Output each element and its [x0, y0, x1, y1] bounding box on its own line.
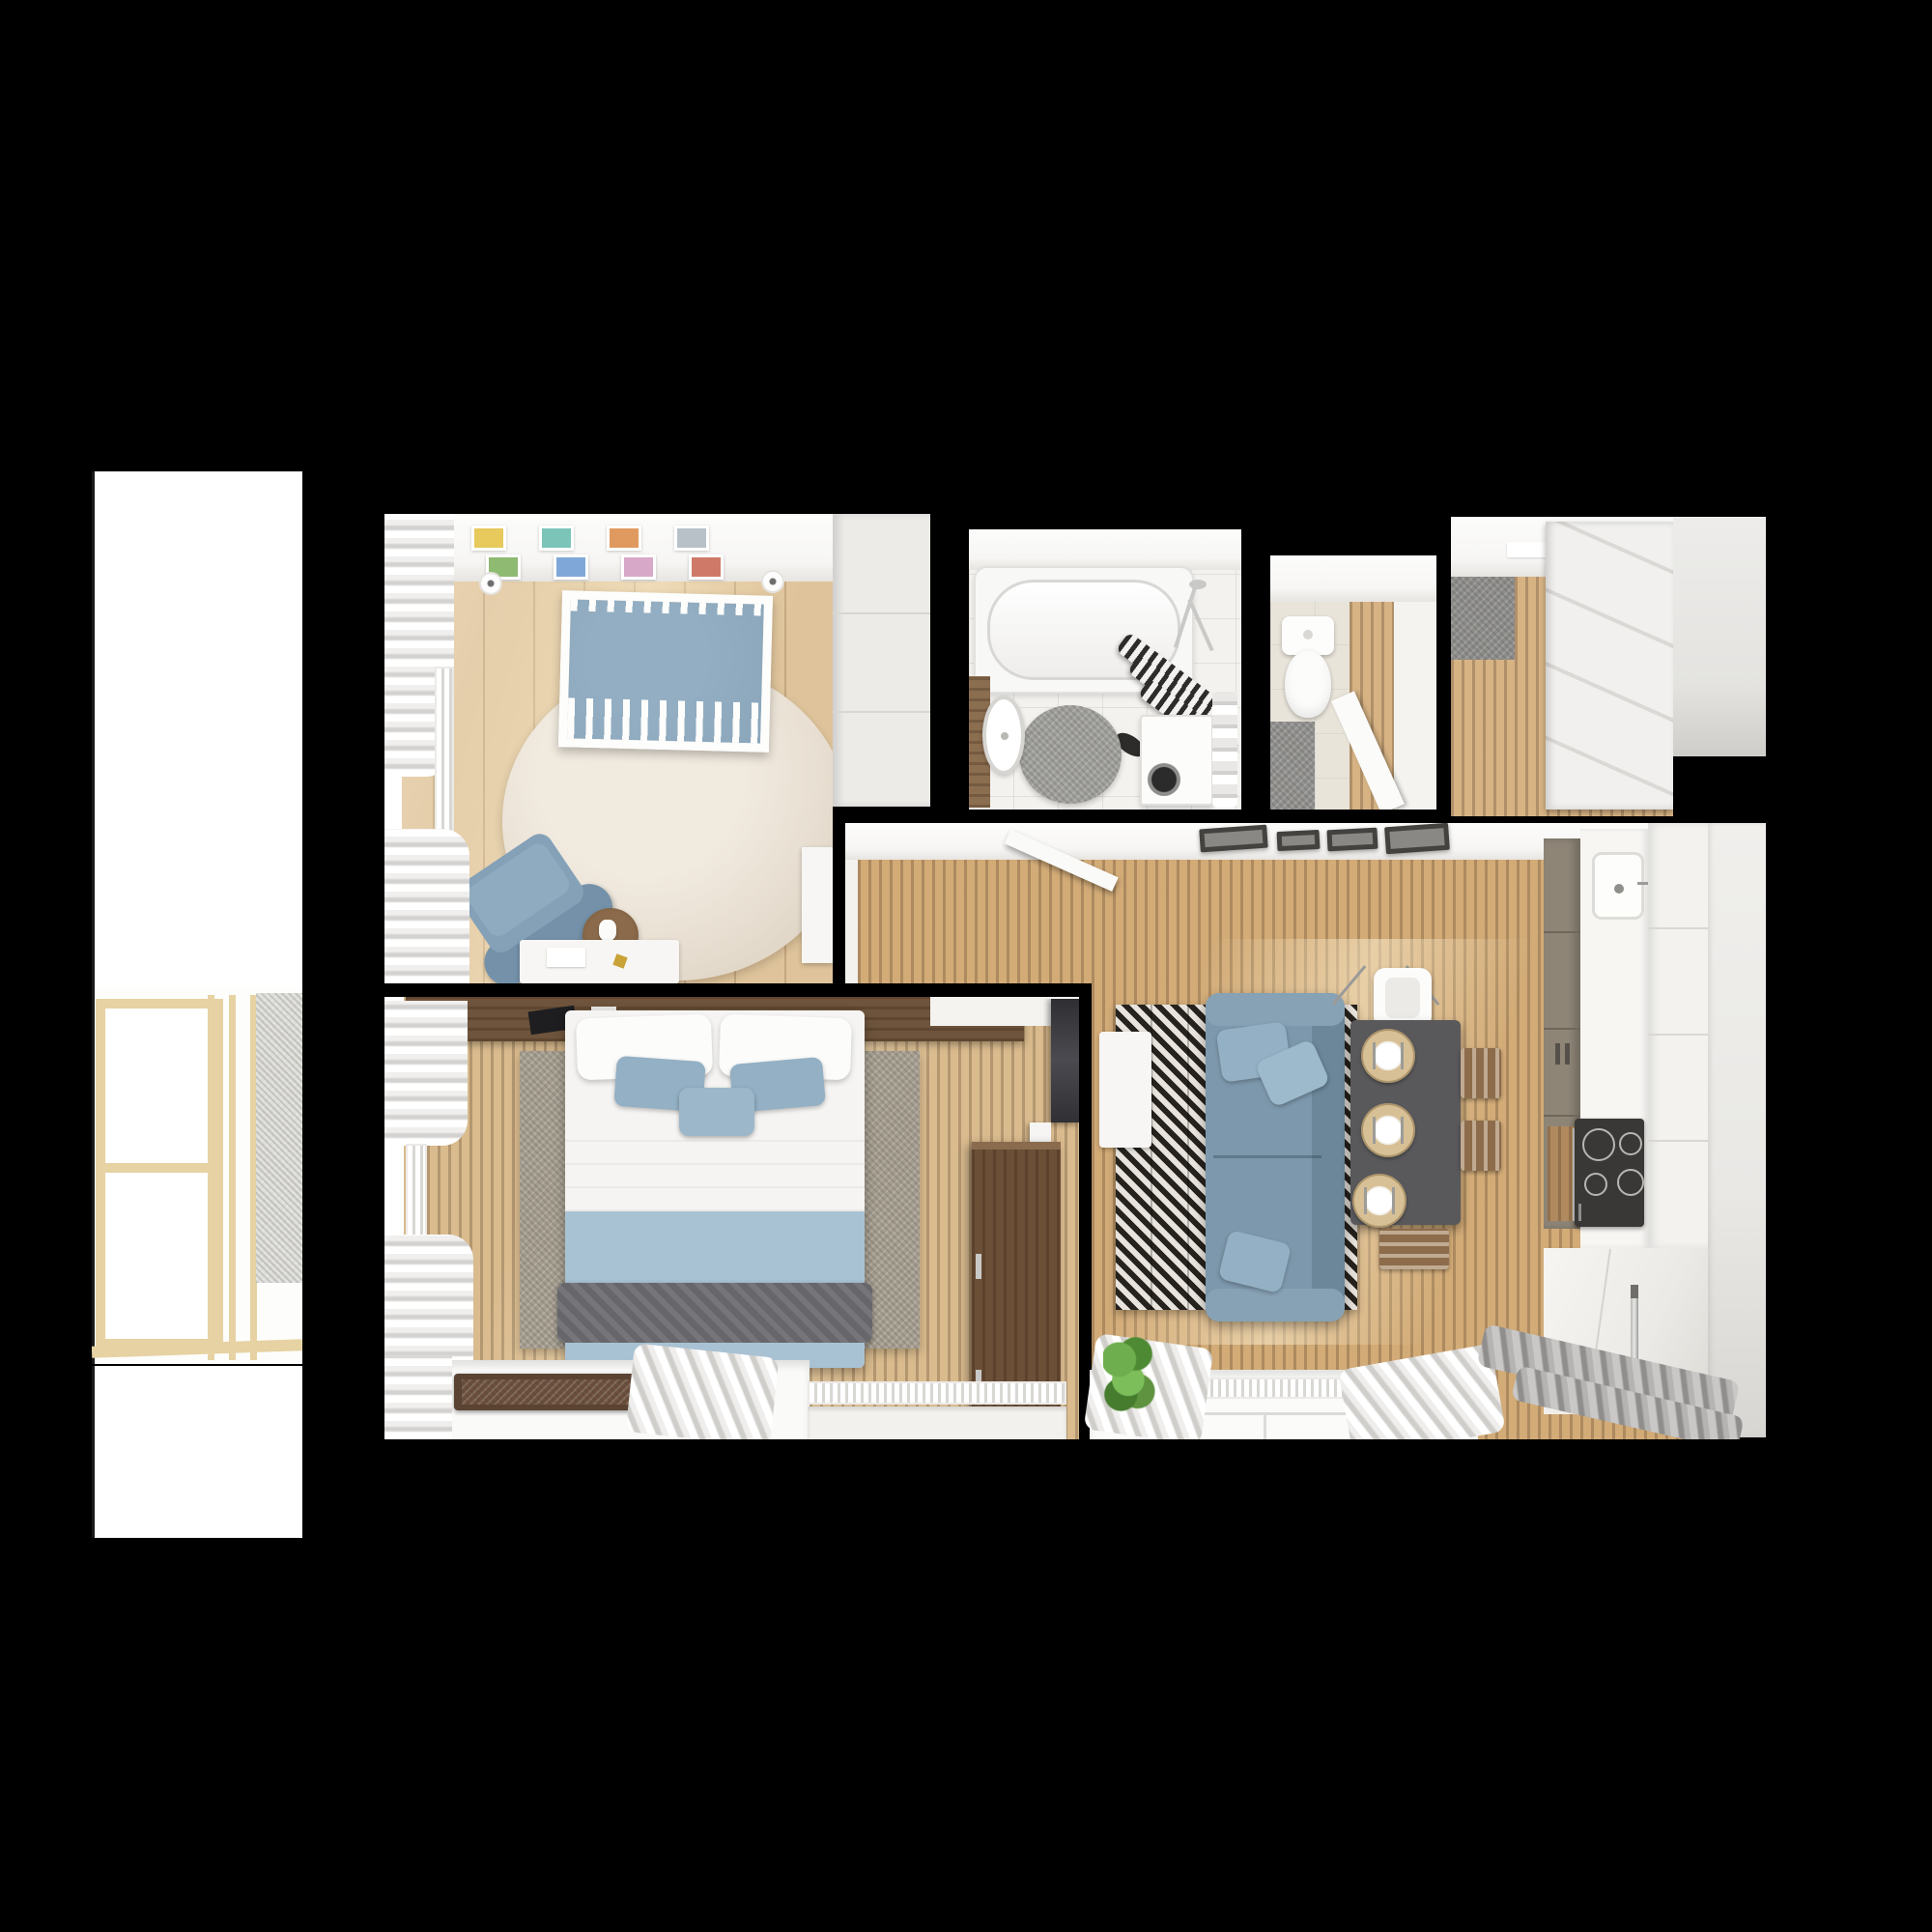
- balcony-floor-top: [92, 471, 302, 987]
- crib: [558, 590, 773, 753]
- bedroom-radiator-bottom: [808, 1381, 1066, 1405]
- sofa-pillow: [1218, 1230, 1293, 1293]
- bedroom-doorway-threshold: [1024, 997, 1079, 999]
- sink-drain: [1001, 732, 1009, 740]
- bedroom-curtain-top: [384, 1001, 468, 1146]
- bedroom-window-bottom: [808, 1406, 1066, 1439]
- cooktop-controls: [1578, 1204, 1581, 1221]
- drawer-seam: [1648, 1034, 1708, 1036]
- bedroom-wall-tv: [1051, 997, 1079, 1122]
- wall-art-frame: [621, 554, 656, 580]
- living-radiator: [1196, 1378, 1360, 1399]
- hall-ceiling-detail: [1507, 542, 1546, 557]
- ceiling-spotlight: [481, 574, 500, 593]
- bedroom-dresser: [972, 1142, 1061, 1410]
- fridge-handle-cap: [1631, 1285, 1638, 1298]
- bedroom-curtain-mid: [626, 1343, 780, 1439]
- burner: [1617, 1169, 1644, 1196]
- wardrobe-seam: [833, 711, 930, 713]
- living-tv-stand: [1099, 1032, 1151, 1148]
- bedroom: [384, 997, 1079, 1439]
- bathroom-rug: [1019, 705, 1122, 804]
- hallway: [1451, 517, 1673, 816]
- drawer-seam: [1648, 927, 1708, 929]
- nursery-curtain-bottom: [384, 829, 469, 983]
- dining-chair: [1379, 1229, 1449, 1269]
- dresser-top-edge: [972, 1142, 1061, 1150]
- nursery-shelf-unit: [802, 847, 833, 963]
- towel-rail: [1212, 692, 1237, 808]
- cabinet-handle: [1565, 1043, 1570, 1065]
- bathroom-wall-band: [969, 529, 1241, 570]
- shower-head: [1189, 580, 1207, 589]
- oven-front: [1548, 1126, 1575, 1221]
- ceiling-spotlight: [763, 572, 782, 591]
- dining-chair: [1461, 1121, 1501, 1171]
- placemat-plate: [1361, 1103, 1415, 1157]
- kitchen-tall-wall: [1708, 823, 1766, 1437]
- kitchen-sink: [1592, 852, 1644, 920]
- toilet-button: [1303, 630, 1313, 639]
- wall-art-frame: [674, 526, 709, 551]
- balcony-window-frame: [96, 999, 223, 1349]
- cabinet-seam: [1544, 1115, 1580, 1117]
- cabinet-seam: [1544, 1028, 1580, 1030]
- bedroom-curtain-bottom-left: [384, 1356, 452, 1439]
- cabinet-handle: [1555, 1043, 1560, 1065]
- wc-floor-mat: [1270, 722, 1315, 810]
- toilet-bowl: [1285, 650, 1331, 718]
- balcony-window-mullion: [99, 1163, 219, 1173]
- window-frame-line: [1264, 1412, 1266, 1439]
- wall-art-frame: [554, 554, 588, 580]
- double-bed: [565, 1010, 865, 1368]
- cooktop: [1575, 1119, 1644, 1227]
- toilet-tank: [1282, 616, 1334, 655]
- balcony-floor-bottom: [92, 1366, 302, 1538]
- crib-slats: [567, 697, 761, 743]
- wardrobe-seam: [833, 612, 930, 614]
- drawer-seam: [1648, 1140, 1708, 1142]
- sofa: [1206, 993, 1345, 1321]
- ceiling-light: [1277, 830, 1321, 851]
- ceiling-light: [1326, 828, 1378, 852]
- bedroom-radiator-left: [406, 1144, 427, 1236]
- sofa-seat-seam: [1213, 1155, 1321, 1158]
- serving-tray: [454, 1374, 643, 1410]
- burner: [1619, 1132, 1642, 1155]
- duvet-fold-lines: [565, 1122, 865, 1211]
- floor-plan-canvas: [0, 0, 1932, 1932]
- sink-drain: [1614, 884, 1624, 894]
- bed-gray-throw: [557, 1283, 872, 1343]
- dresser-handle: [976, 1254, 981, 1279]
- potted-plant: [1103, 1331, 1155, 1412]
- ceiling-light: [1199, 825, 1268, 853]
- nursery-radiator: [435, 667, 454, 836]
- wc-wall-band: [1270, 555, 1436, 602]
- crib-slats-top: [571, 599, 764, 615]
- hall-doormat: [1451, 577, 1515, 660]
- desk-gold-star: [612, 953, 627, 968]
- kitchen-white-drawers: [1648, 823, 1708, 1248]
- burner: [1582, 1128, 1615, 1161]
- wall-art-frame: [689, 554, 724, 580]
- sofa-armrest-bottom: [1206, 1289, 1345, 1321]
- ceiling-light: [1384, 823, 1450, 854]
- wall-art-frame: [539, 526, 574, 551]
- balcony-glazing: [92, 987, 302, 1364]
- bathroom-sink: [982, 696, 1025, 775]
- dining-chair: [1461, 1048, 1501, 1098]
- washing-machine: [1140, 715, 1213, 806]
- balcony-concrete-wall: [256, 993, 302, 1283]
- bathroom: [969, 529, 1241, 810]
- tray-inner: [462, 1379, 636, 1405]
- washing-machine-door: [1148, 763, 1180, 796]
- placemat-plate: [1352, 1174, 1406, 1228]
- desk-white-box: [547, 948, 585, 967]
- nursery: [384, 514, 833, 983]
- wall-art-frame: [471, 526, 506, 551]
- wc: [1270, 555, 1436, 810]
- burner: [1584, 1173, 1607, 1196]
- hall-wardrobe: [1546, 522, 1673, 810]
- hall-cabinet-column: [1673, 517, 1766, 756]
- placemat-plate: [1361, 1029, 1415, 1083]
- wall-art-frame: [607, 526, 641, 551]
- nursery-wardrobe: [833, 514, 930, 807]
- side-table-figurine: [599, 920, 616, 941]
- high-chair: [1374, 968, 1432, 1028]
- balcony: [92, 471, 302, 1538]
- cabinet-seam: [1544, 931, 1580, 933]
- nursery-desk: [520, 940, 679, 983]
- sofa-armrest-top: [1206, 993, 1345, 1026]
- high-chair-seat: [1385, 978, 1420, 1018]
- balcony-frame-slats: [208, 995, 262, 1360]
- bed-blue-blanket: [565, 1211, 865, 1283]
- corridor-floor: [858, 856, 1092, 983]
